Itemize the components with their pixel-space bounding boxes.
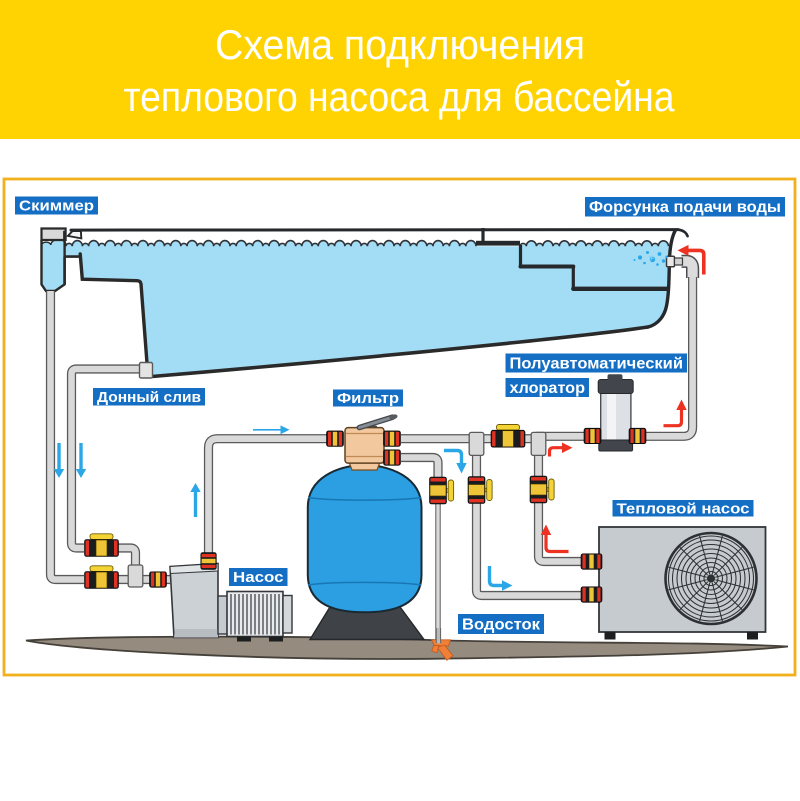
svg-text:хлоратор: хлоратор <box>510 380 586 397</box>
svg-text:Схема подключения: Схема подключения <box>215 21 585 68</box>
svg-text:Донный слив: Донный слив <box>97 389 201 406</box>
svg-text:Полуавтоматический: Полуавтоматический <box>510 355 684 372</box>
svg-text:Форсунка подачи воды: Форсунка подачи воды <box>589 199 781 216</box>
svg-text:Тепловой насос: Тепловой насос <box>617 500 750 517</box>
svg-text:Водосток: Водосток <box>462 616 540 633</box>
svg-text:Насос: Насос <box>233 569 284 586</box>
svg-text:теплового насоса для бассейна: теплового насоса для бассейна <box>124 73 676 120</box>
svg-text:Скиммер: Скиммер <box>19 198 94 215</box>
svg-text:Фильтр: Фильтр <box>337 390 399 407</box>
